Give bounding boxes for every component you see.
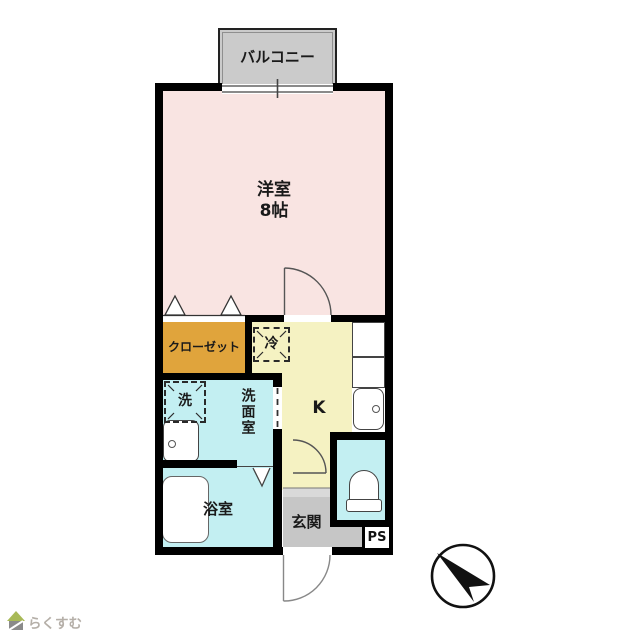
main-room-size: 8帖	[163, 201, 385, 222]
washroom-label: 洗面室	[238, 388, 256, 436]
washbasin-drain-icon	[168, 440, 176, 448]
closet-label: クローゼット	[163, 340, 245, 355]
kitchen-label: K	[295, 398, 343, 419]
front-door-swing-icon	[284, 555, 331, 601]
window-opening	[222, 84, 333, 94]
wall-segment	[273, 429, 282, 555]
room-kitchen-lower	[282, 432, 330, 490]
wall-segment	[273, 373, 282, 387]
kitchen-counter-mid	[352, 357, 385, 388]
entrance-label: 玄関	[281, 513, 332, 532]
bathroom-label: 浴室	[163, 500, 273, 519]
wall-segment	[330, 432, 385, 440]
kitchen-sink-drain-icon	[372, 405, 380, 413]
door-opening-main-room	[284, 315, 331, 322]
wall-segment	[245, 315, 252, 378]
room-entrance-extension	[330, 527, 363, 547]
entrance-step	[283, 488, 330, 497]
pipe-space: PS	[362, 524, 392, 551]
washer-label: 洗	[164, 393, 206, 411]
wall-segment	[155, 373, 282, 380]
kitchen-counter-top	[352, 322, 385, 357]
logo-text: らくすむ	[28, 612, 82, 632]
washbasin	[163, 420, 199, 462]
site-logo: らくすむ	[28, 612, 82, 632]
wall-segment	[155, 547, 283, 555]
main-room-name: 洋室	[163, 180, 385, 201]
floorplan-page: { "floorplan": { "labels": { "balcony": …	[0, 0, 640, 640]
wall-segment	[385, 83, 393, 555]
toilet-tank-icon	[346, 499, 382, 512]
wall-segment	[155, 460, 237, 468]
wall-segment	[155, 83, 163, 555]
fridge-label: 冷	[253, 336, 290, 354]
door-opening-entrance	[283, 547, 332, 555]
balcony-label: バルコニー	[218, 48, 337, 67]
kitchen-sink	[353, 388, 384, 430]
main-room-label: 洋室 8帖	[163, 180, 385, 223]
wall-segment	[333, 83, 393, 91]
pipe-space-label: PS	[368, 530, 387, 545]
wall-segment	[331, 315, 385, 322]
door-opening-washroom	[273, 387, 282, 429]
wall-segment	[155, 83, 222, 91]
logo-house-icon	[7, 611, 25, 630]
north-arrow-icon	[432, 545, 494, 607]
